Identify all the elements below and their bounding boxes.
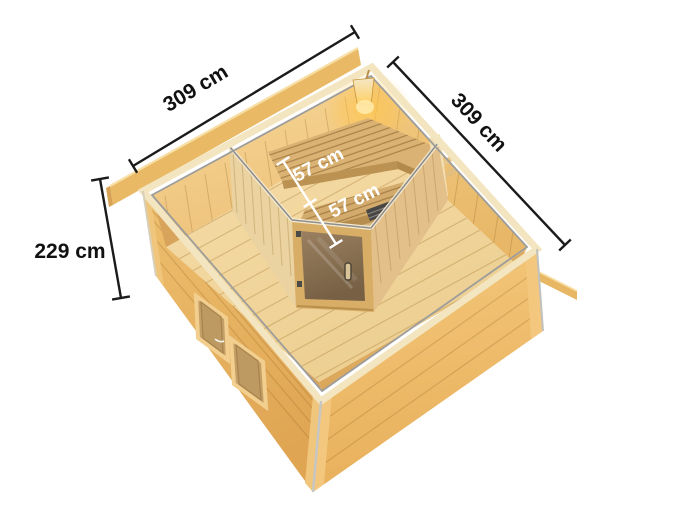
sauna-door <box>292 220 374 312</box>
door-hinge-bottom <box>297 281 302 287</box>
door-hinge-top <box>296 231 301 237</box>
wall-height-label: 229 cm <box>34 240 105 263</box>
sauna-product-render: 309 cm 309 cm 229 cm 57 cm 57 cm <box>0 0 700 525</box>
product-image-canvas: 309 cm 309 cm 229 cm 57 cm 57 cm <box>0 0 700 525</box>
door-handle <box>345 263 351 280</box>
